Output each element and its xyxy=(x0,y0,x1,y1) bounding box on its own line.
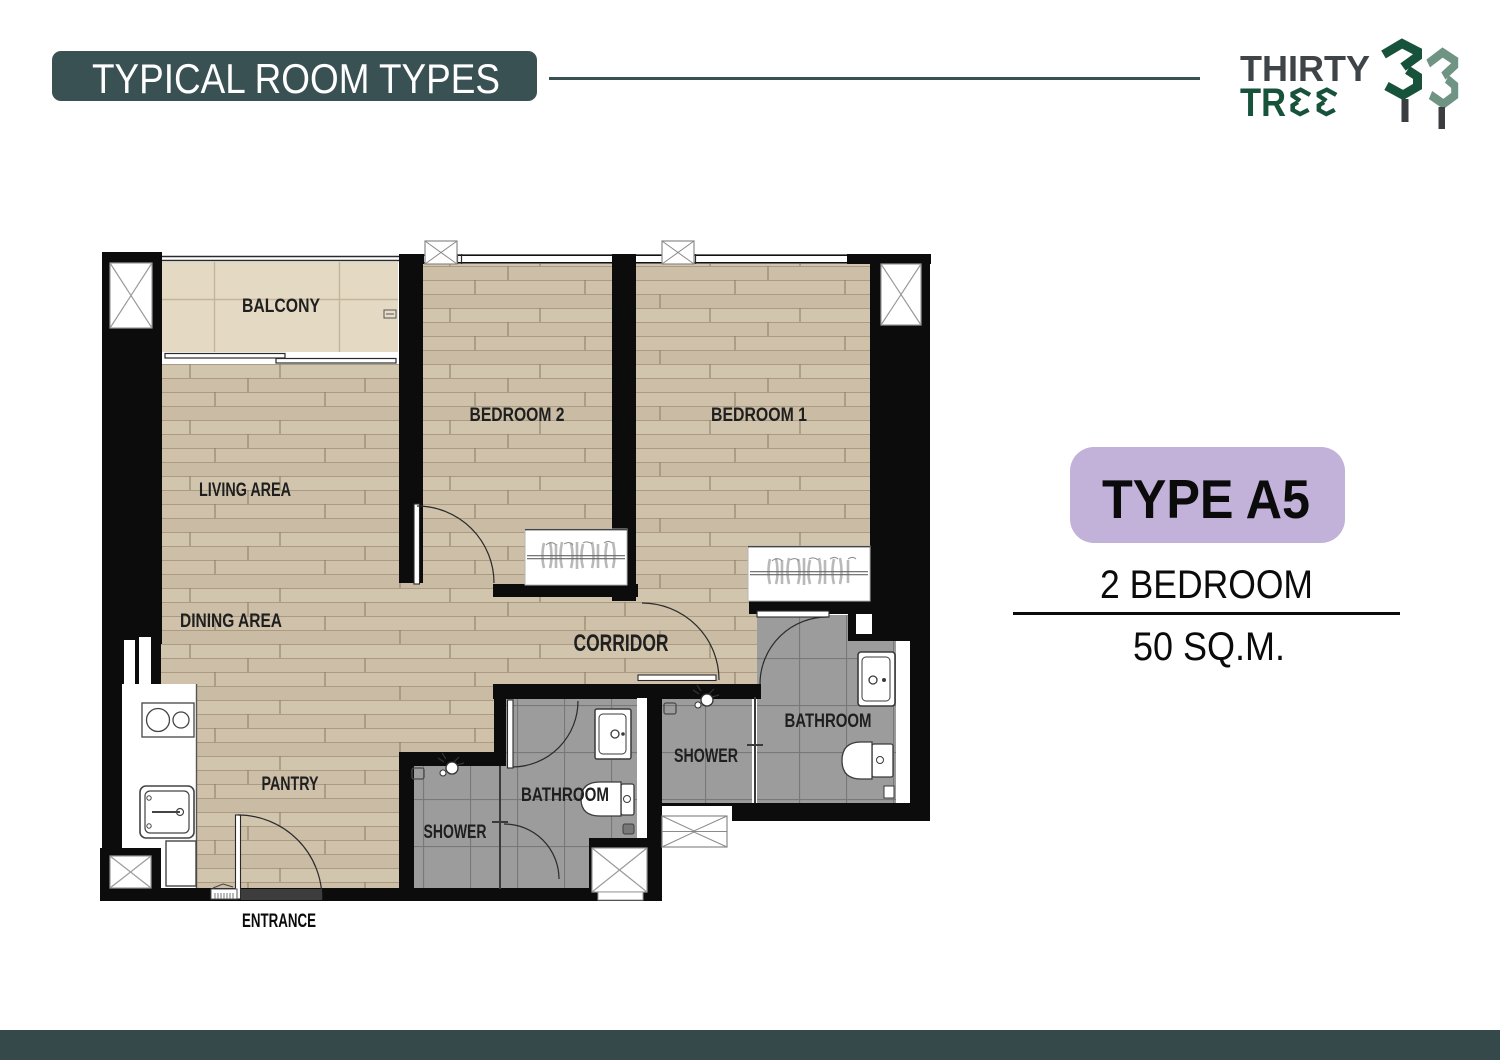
svg-text:PANTRY: PANTRY xyxy=(262,774,319,795)
svg-text:2 BEDROOM: 2 BEDROOM xyxy=(1100,563,1313,607)
svg-text:TYPICAL ROOM TYPES: TYPICAL ROOM TYPES xyxy=(92,55,500,102)
svg-text:DINING AREA: DINING AREA xyxy=(180,611,282,632)
svg-text:BATHROOM: BATHROOM xyxy=(521,785,609,806)
svg-text:ENTRANCE: ENTRANCE xyxy=(242,911,316,932)
svg-text:TYPE A5: TYPE A5 xyxy=(1102,468,1310,530)
svg-text:BEDROOM 1: BEDROOM 1 xyxy=(711,405,807,426)
svg-text:50 SQ.M.: 50 SQ.M. xyxy=(1133,625,1285,669)
svg-text:LIVING AREA: LIVING AREA xyxy=(199,480,291,501)
svg-text:BATHROOM: BATHROOM xyxy=(785,711,872,732)
svg-text:BEDROOM 2: BEDROOM 2 xyxy=(470,405,565,426)
svg-text:SHOWER: SHOWER xyxy=(424,822,487,843)
svg-text:SHOWER: SHOWER xyxy=(674,746,738,767)
svg-text:TR: TR xyxy=(1240,81,1286,125)
svg-text:BALCONY: BALCONY xyxy=(242,296,320,317)
svg-text:CORRIDOR: CORRIDOR xyxy=(574,630,669,657)
